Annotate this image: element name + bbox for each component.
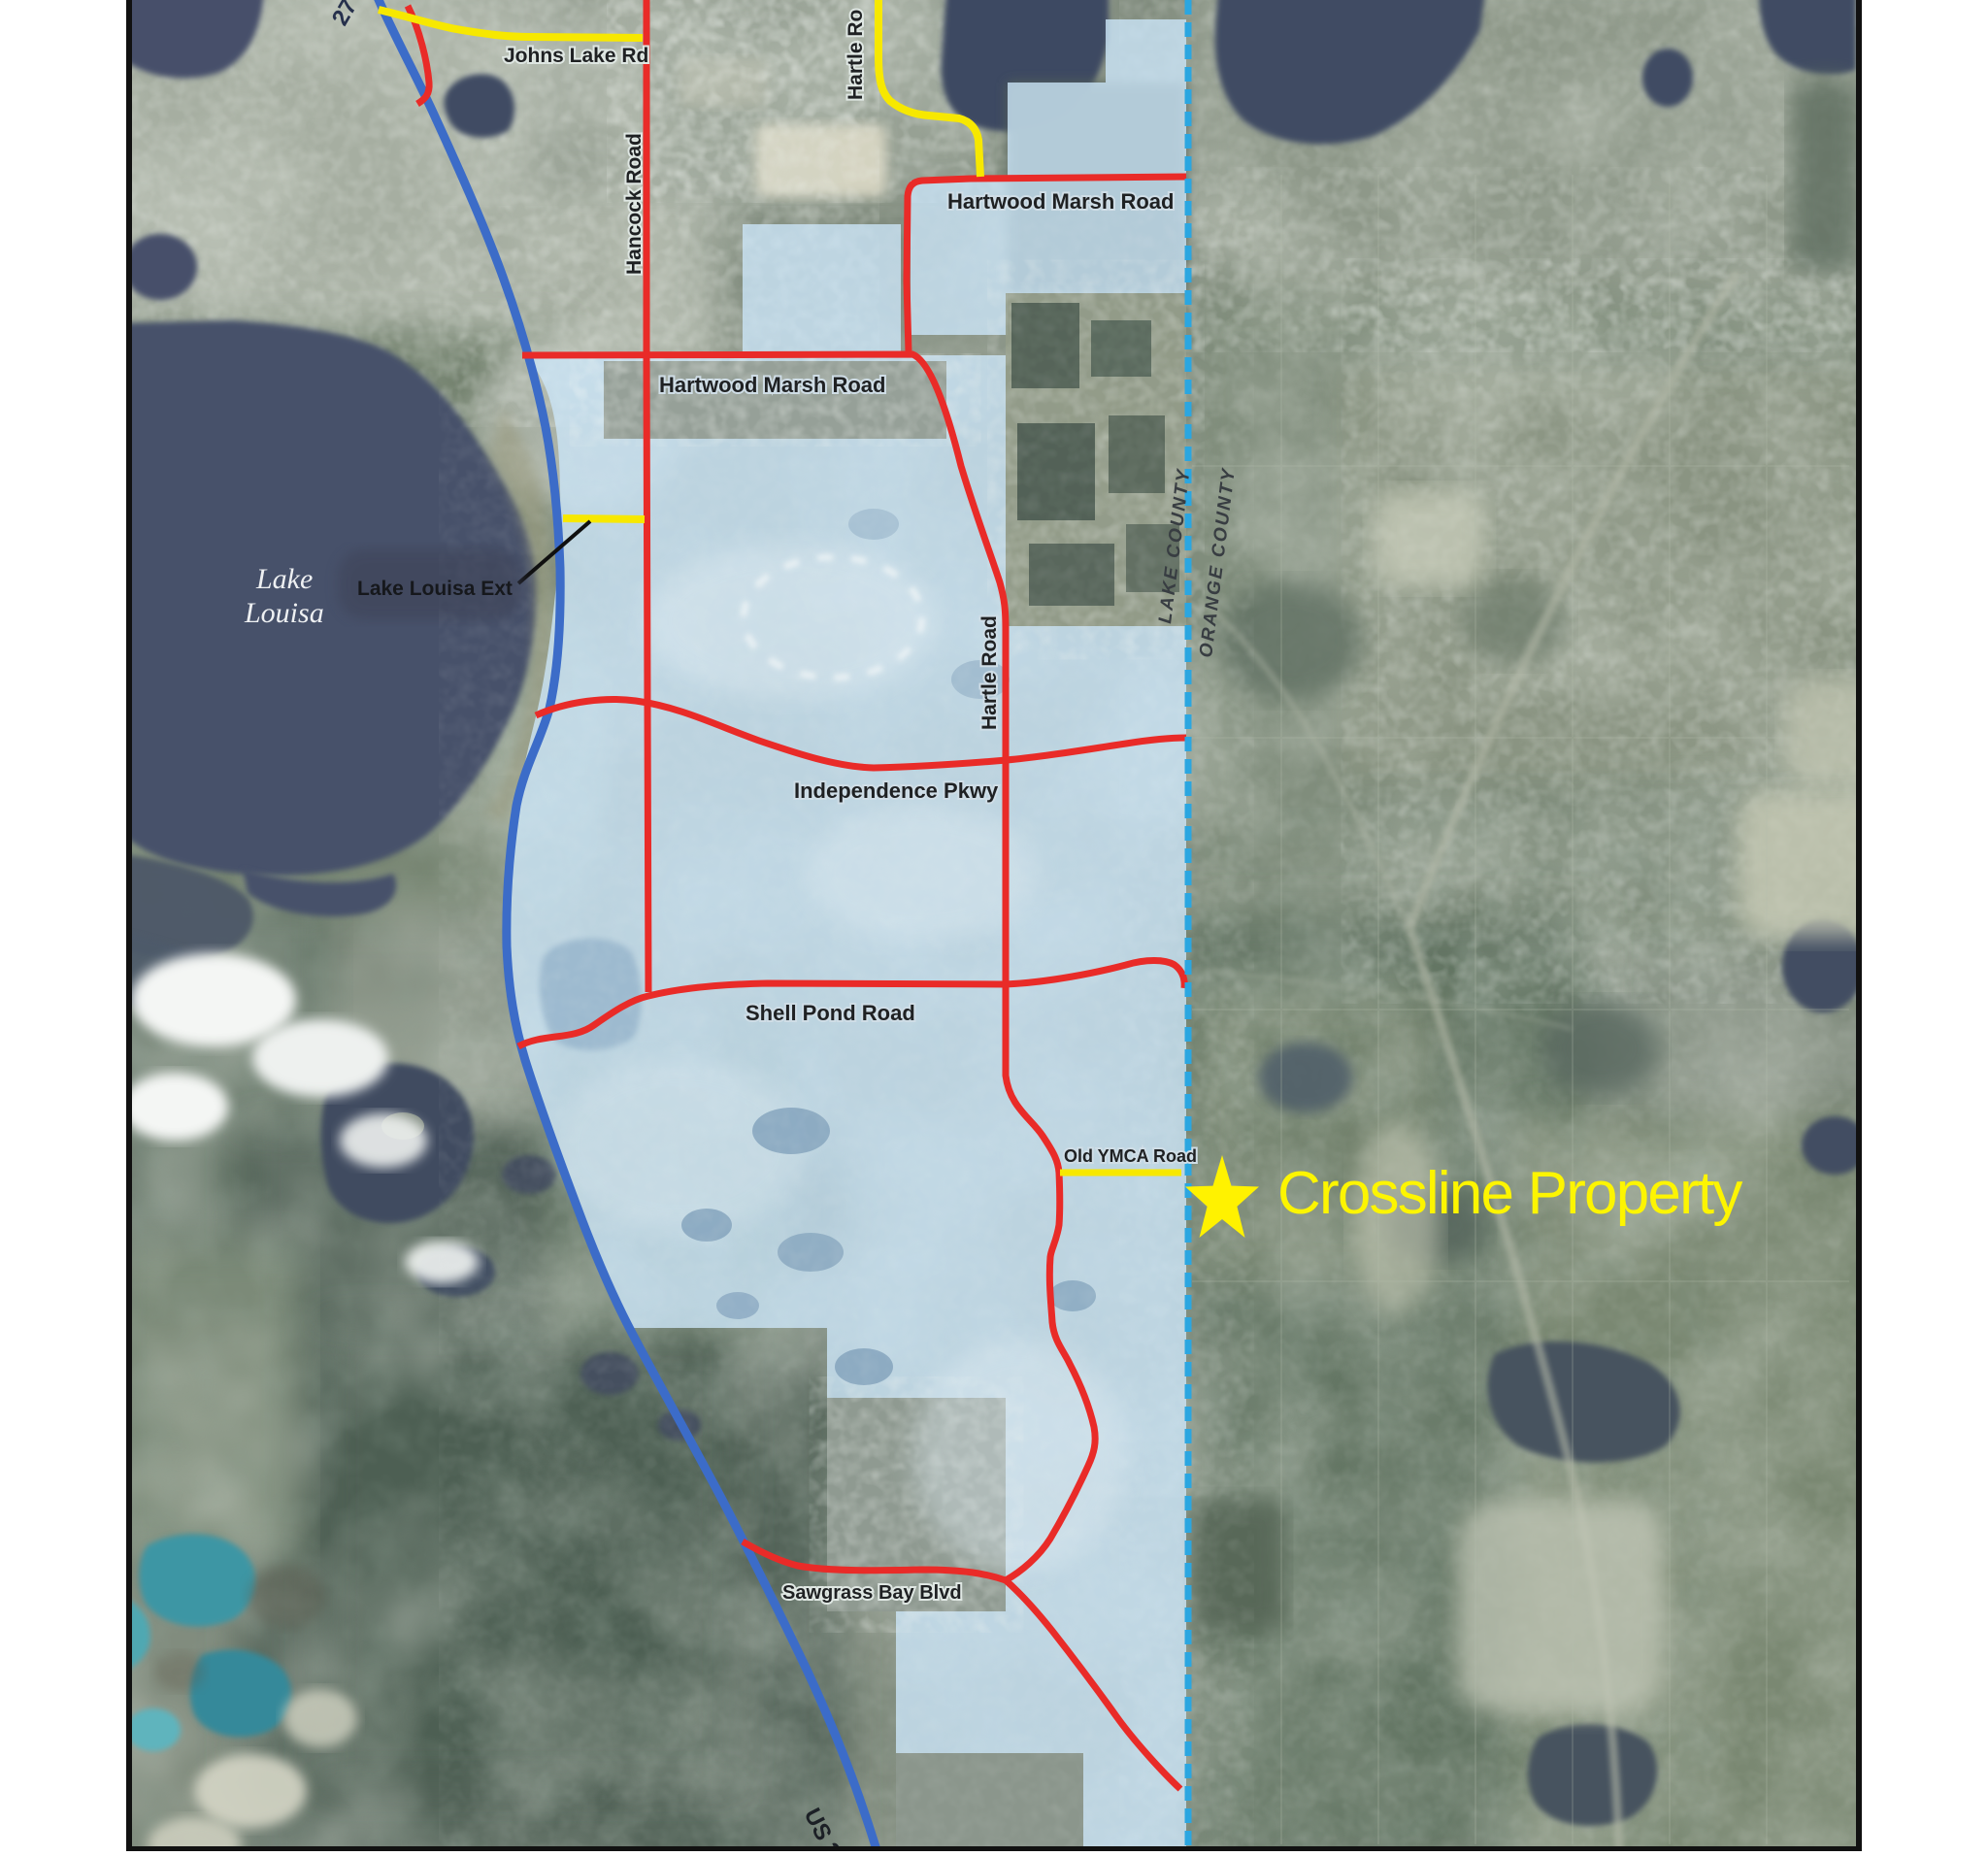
svg-text:Old YMCA Road: Old YMCA Road (1064, 1146, 1197, 1166)
svg-text:Johns Lake Rd: Johns Lake Rd (504, 45, 648, 67)
svg-text:Shell Pond Road: Shell Pond Road (745, 1001, 915, 1025)
svg-text:Crossline Property: Crossline Property (1277, 1160, 1742, 1227)
svg-text:Hartwood Marsh Road: Hartwood Marsh Road (947, 189, 1174, 214)
svg-text:Lake Louisa Ext: Lake Louisa Ext (357, 578, 513, 600)
svg-text:Hartle Road: Hartle Road (978, 615, 1001, 730)
svg-text:Independence Pkwy: Independence Pkwy (794, 779, 999, 803)
svg-text:Louisa: Louisa (244, 597, 324, 629)
svg-text:Sawgrass Bay Blvd: Sawgrass Bay Blvd (782, 1582, 962, 1604)
svg-text:Lake: Lake (255, 563, 313, 595)
svg-text:Hartle Ro: Hartle Ro (845, 10, 867, 100)
svg-text:Hartwood Marsh Road: Hartwood Marsh Road (659, 373, 885, 397)
svg-text:Hancock Road: Hancock Road (623, 133, 646, 275)
